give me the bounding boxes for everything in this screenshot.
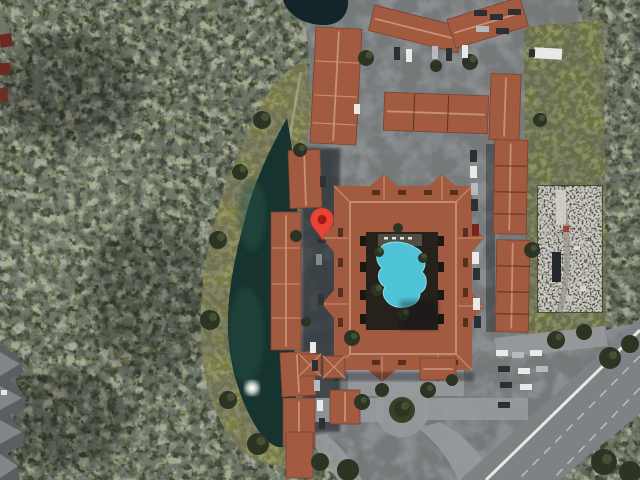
tree (533, 113, 547, 127)
red-shed (0, 33, 13, 48)
car (432, 46, 438, 59)
red-shed (0, 88, 8, 102)
car (476, 26, 489, 32)
car (473, 298, 480, 310)
tree (301, 317, 311, 327)
car (496, 28, 509, 34)
car (314, 380, 320, 391)
tree (290, 230, 302, 242)
tree (344, 330, 360, 346)
tree (599, 347, 621, 369)
building-shadow (486, 144, 495, 332)
storage-item (574, 246, 580, 250)
car (394, 47, 400, 60)
car (498, 402, 510, 408)
white-rooftop (1, 390, 7, 395)
storage-container (552, 252, 561, 282)
tree (219, 391, 237, 409)
satellite-map[interactable] (0, 0, 640, 480)
car (320, 176, 326, 187)
tree (621, 335, 639, 353)
pond-reflection (238, 179, 266, 251)
car (471, 183, 478, 195)
car (496, 350, 508, 356)
storage-shed-roof (556, 190, 566, 224)
car (473, 268, 480, 280)
forest-light-patch (0, 195, 80, 305)
car (462, 45, 468, 58)
car (406, 49, 412, 62)
car (536, 366, 548, 372)
car (508, 9, 521, 15)
tree (430, 60, 442, 72)
car (472, 224, 479, 236)
satellite-canvas (0, 0, 640, 480)
car (518, 368, 530, 374)
storage-yard (538, 186, 602, 312)
car (446, 48, 452, 61)
car (530, 350, 542, 356)
tree (293, 143, 307, 157)
car (512, 352, 524, 358)
car (474, 316, 481, 328)
car (498, 366, 510, 372)
tree (358, 50, 374, 66)
tree (232, 164, 248, 180)
courtyard-shadow (400, 300, 438, 330)
tree (247, 433, 269, 455)
car (520, 384, 532, 390)
car (312, 360, 318, 371)
car (319, 418, 325, 429)
car (316, 254, 322, 265)
pond-reflection (228, 287, 264, 383)
tree (253, 111, 271, 129)
forest-shadow-patch (90, 220, 210, 380)
red-shed (0, 63, 10, 75)
pond-fountain-core (249, 385, 254, 390)
tree (375, 383, 389, 397)
car (354, 104, 360, 114)
car (500, 382, 512, 388)
tree (524, 242, 540, 258)
courtyard-building (322, 174, 484, 382)
row-building (286, 432, 313, 478)
tree (446, 374, 458, 386)
tree (420, 382, 436, 398)
tree (591, 449, 617, 475)
roundabout-tree-light (401, 402, 409, 410)
pin-dot (317, 215, 326, 224)
tree (576, 324, 592, 340)
car (310, 342, 316, 353)
swimming-pool (377, 242, 427, 307)
car (472, 252, 479, 264)
car (490, 14, 503, 20)
car (318, 294, 324, 305)
car (317, 400, 323, 411)
car (471, 199, 478, 211)
car (474, 10, 487, 16)
car (470, 166, 477, 178)
forest-shadow-patch (0, 35, 140, 145)
car (470, 150, 477, 162)
tree (337, 459, 359, 480)
tree (200, 310, 220, 330)
tree (311, 453, 329, 471)
tree (354, 394, 370, 410)
forest-light-patch (55, 140, 165, 220)
storage-item (566, 296, 573, 301)
tree (209, 231, 227, 249)
roundabout-east-road (424, 398, 528, 420)
tree (547, 331, 565, 349)
storage-red-item (563, 226, 569, 232)
storage-item (580, 286, 586, 291)
